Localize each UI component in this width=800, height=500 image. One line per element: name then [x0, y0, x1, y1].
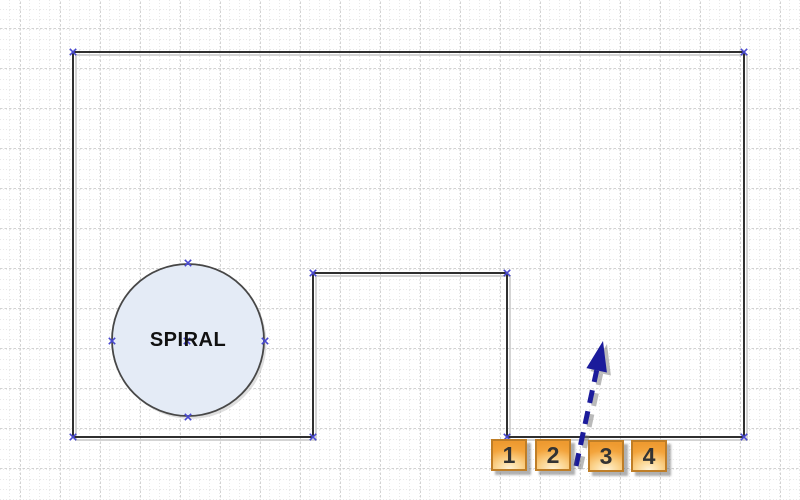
spiral-label: SPIRAL — [113, 328, 263, 352]
numbered-box-1[interactable]: 1 — [491, 439, 527, 471]
grid-major-lines — [0, 0, 800, 500]
numbered-box-2-label: 2 — [547, 442, 560, 469]
numbered-box-3[interactable]: 3 — [588, 440, 624, 472]
numbered-box-2[interactable]: 2 — [535, 439, 571, 471]
numbered-box-4[interactable]: 4 — [631, 440, 667, 472]
numbered-box-3-label: 3 — [600, 443, 613, 470]
numbered-box-4-label: 4 — [643, 443, 656, 470]
numbered-box-1-label: 1 — [503, 442, 516, 469]
diagram-layer — [0, 0, 800, 500]
drawing-canvas[interactable]: SPIRAL 1 2 3 4 — [0, 0, 800, 500]
